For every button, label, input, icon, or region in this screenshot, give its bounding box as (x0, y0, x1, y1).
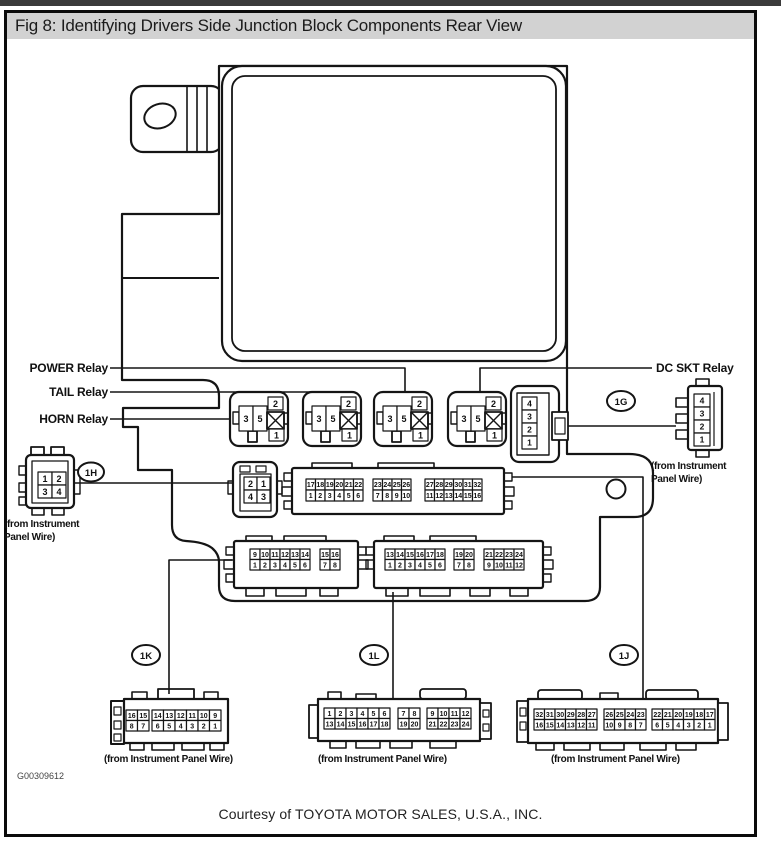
figure-title-bar: Fig 8: Identifying Drivers Side Junction… (7, 13, 754, 39)
figure-frame (4, 10, 757, 837)
figure-page: Fig 8: Identifying Drivers Side Junction… (0, 0, 781, 847)
window-top-strip (0, 0, 781, 6)
courtesy-line: Courtesy of TOYOTA MOTOR SALES, U.S.A., … (4, 806, 757, 822)
figure-title: Fig 8: Identifying Drivers Side Junction… (15, 16, 522, 36)
